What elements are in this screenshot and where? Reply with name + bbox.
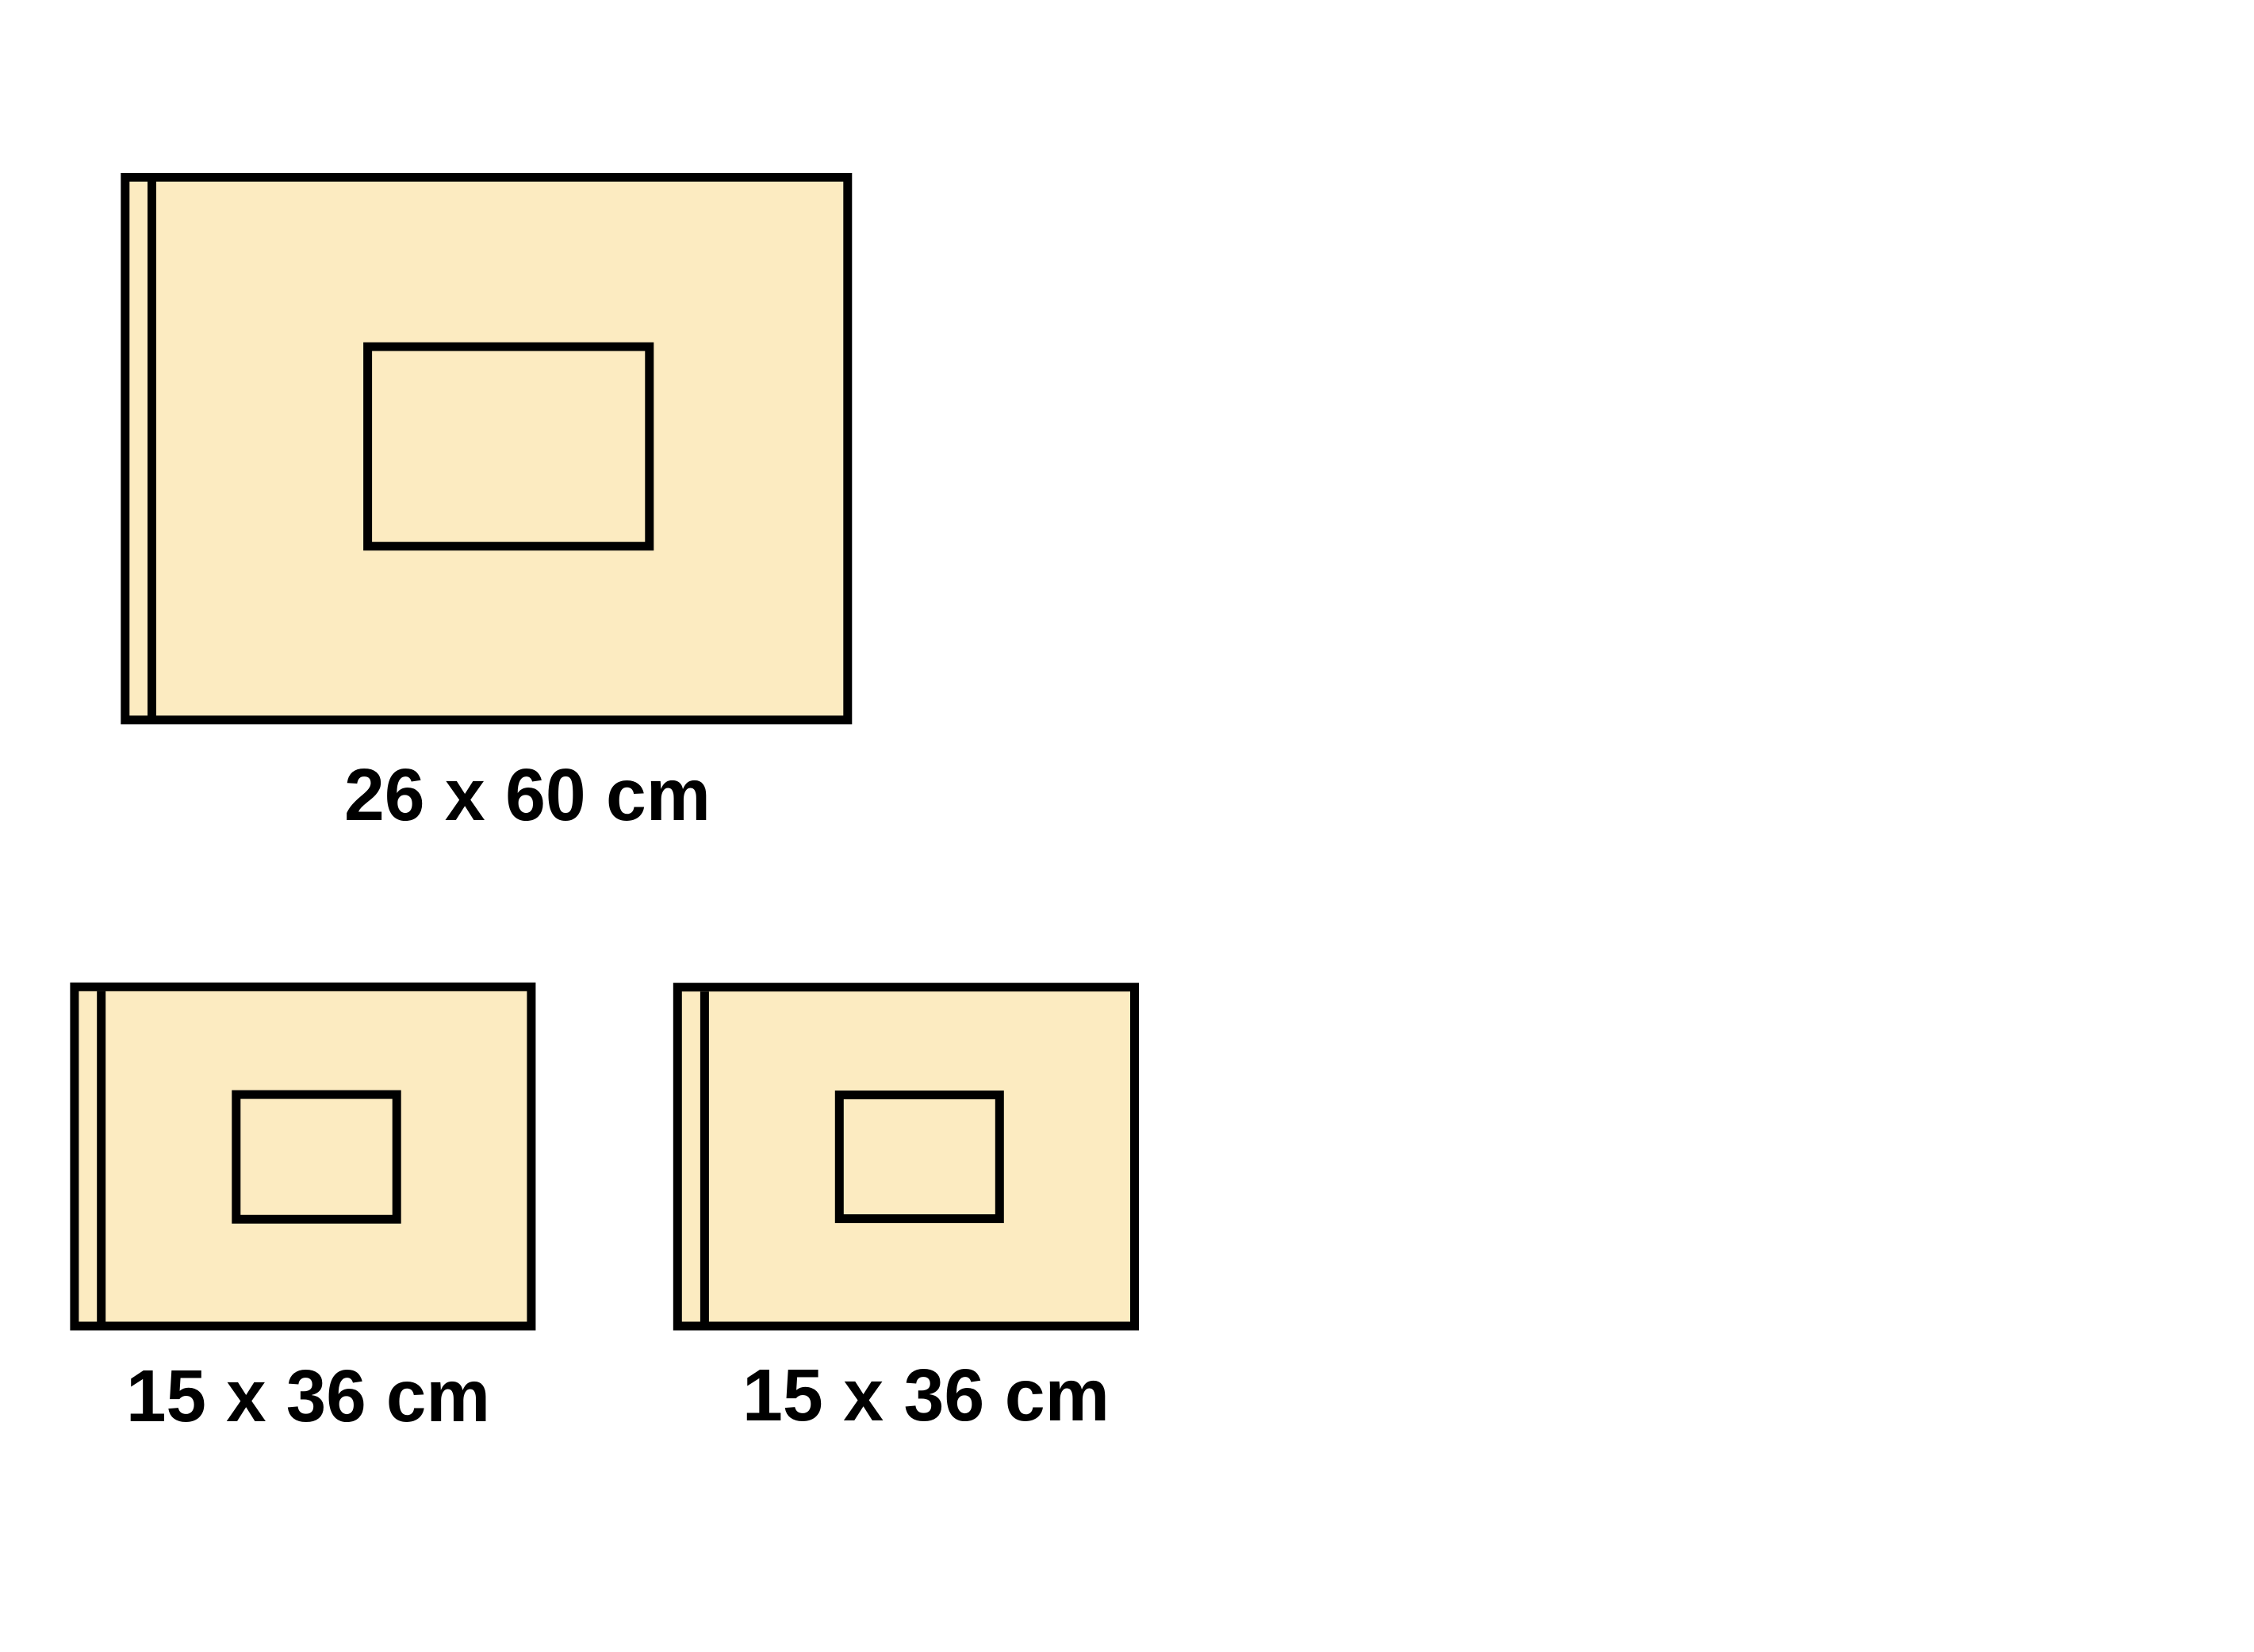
svg-text:15 x 36 cm: 15 x 36 cm [742, 1354, 1110, 1436]
svg-text:15 x 36 cm: 15 x 36 cm [126, 1355, 490, 1437]
svg-text:26 x 60 cm: 26 x 60 cm [344, 753, 711, 836]
